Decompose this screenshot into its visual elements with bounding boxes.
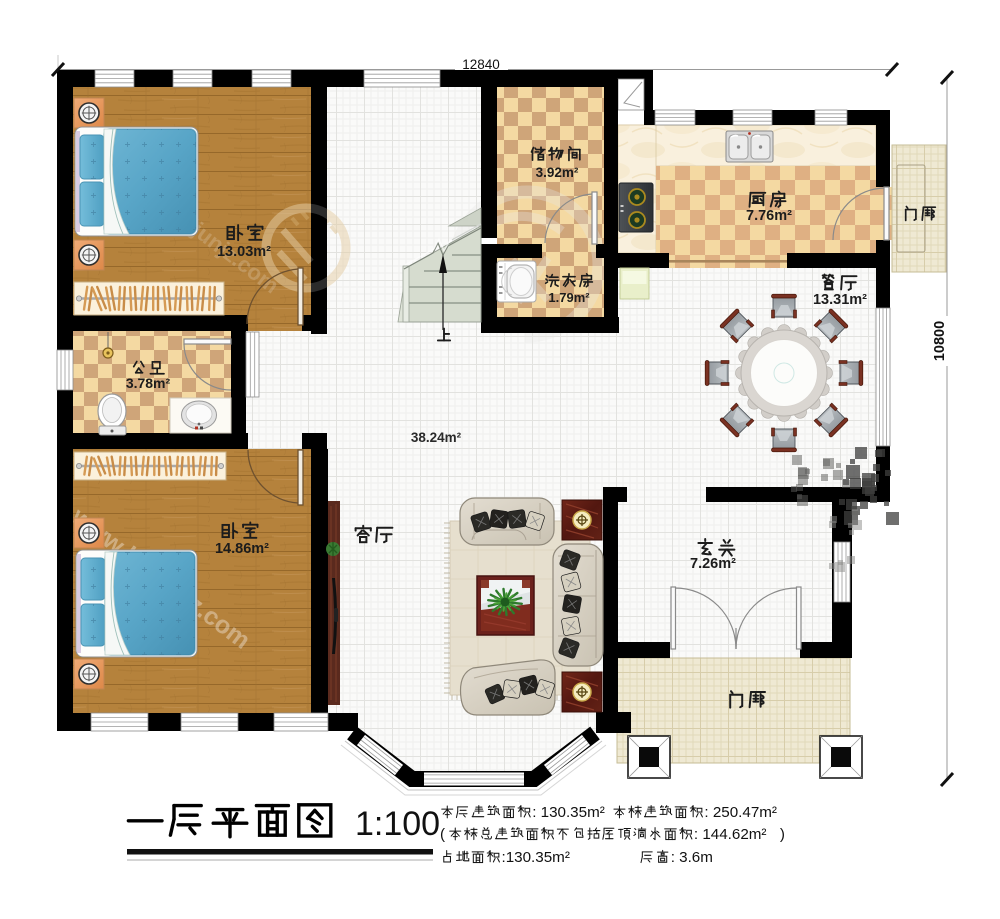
svg-text:7.26m²: 7.26m² bbox=[690, 556, 736, 572]
svg-text:: 130.35m²: : 130.35m² bbox=[532, 804, 605, 821]
svg-text:(: ( bbox=[440, 826, 445, 843]
svg-text:13.31m²: 13.31m² bbox=[813, 292, 867, 308]
svg-text:: 3.6m: : 3.6m bbox=[671, 849, 713, 866]
svg-text:10800: 10800 bbox=[932, 321, 948, 361]
svg-text:1.79m²: 1.79m² bbox=[548, 290, 590, 305]
svg-text:12840: 12840 bbox=[462, 57, 500, 72]
svg-text:14.86m²: 14.86m² bbox=[215, 541, 269, 557]
svg-text:7.76m²: 7.76m² bbox=[746, 208, 792, 224]
svg-text:3.78m²: 3.78m² bbox=[126, 375, 171, 391]
svg-text:3.92m²: 3.92m² bbox=[536, 165, 579, 180]
svg-text::130.35m²: :130.35m² bbox=[502, 849, 570, 866]
svg-text:: 144.62m²: : 144.62m² bbox=[694, 826, 767, 843]
svg-text:1:100: 1:100 bbox=[355, 805, 440, 843]
svg-text:38.24m²: 38.24m² bbox=[411, 430, 462, 445]
svg-text:13.03m²: 13.03m² bbox=[217, 244, 271, 260]
svg-text:): ) bbox=[780, 826, 785, 843]
svg-text:: 250.47m²: : 250.47m² bbox=[704, 804, 777, 821]
